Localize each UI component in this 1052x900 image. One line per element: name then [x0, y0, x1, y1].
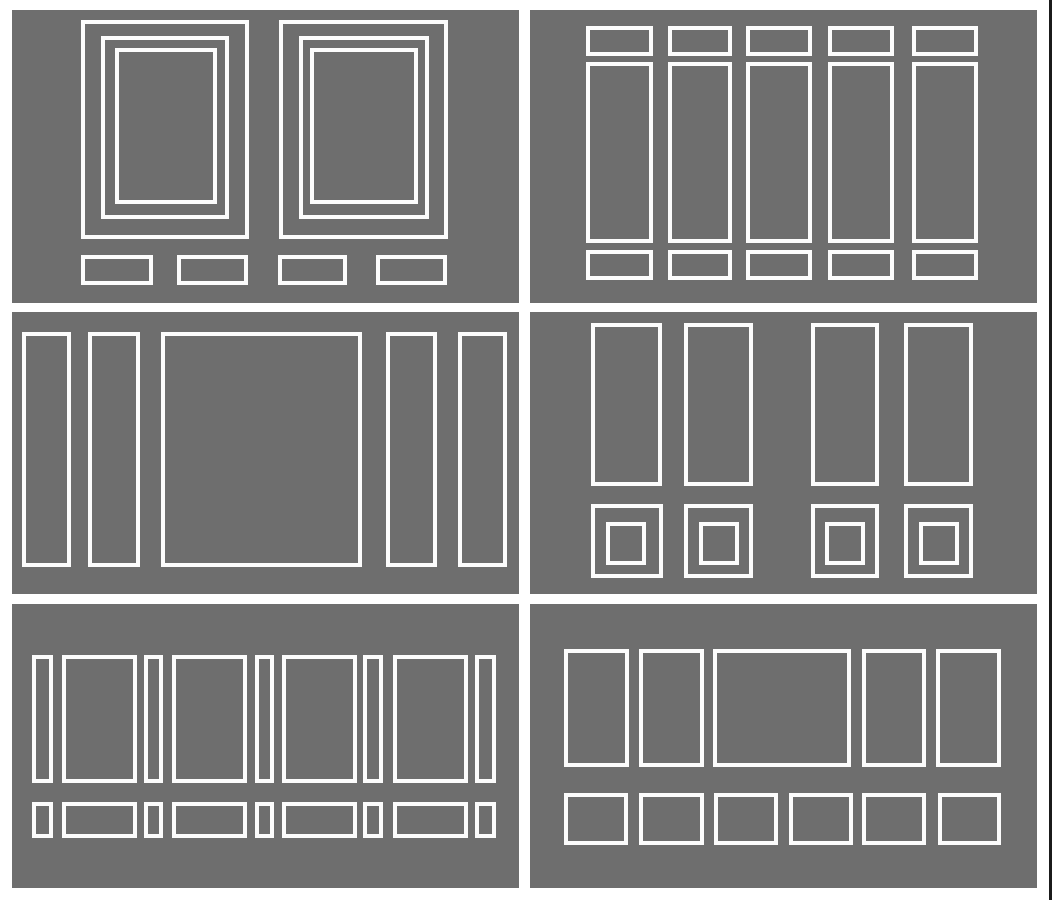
molding-frame-outline: [475, 802, 496, 838]
molding-frame-outline: [828, 250, 894, 280]
molding-frame-outline: [177, 255, 248, 285]
molding-frame-outline: [746, 26, 812, 56]
molding-frame-outline: [458, 332, 507, 567]
molding-frame-outline: [713, 649, 851, 767]
molding-frame-outline: [475, 655, 496, 783]
molding-frame-outline: [393, 802, 468, 838]
molding-frame-outline: [586, 62, 653, 243]
molding-frame-outline: [88, 332, 140, 567]
panel-nested-picture-frames-with-base-blocks: [12, 10, 519, 303]
molding-frame-outline: [936, 649, 1001, 767]
molding-layout-diagram: [0, 0, 1052, 900]
molding-frame-outline: [606, 522, 646, 565]
molding-frame-outline: [828, 26, 894, 56]
molding-frame-outline: [912, 62, 978, 243]
panel-center-square-with-side-columns: [12, 312, 519, 594]
molding-frame-outline: [22, 332, 71, 567]
molding-frame-outline: [668, 250, 732, 280]
molding-frame-outline: [811, 323, 879, 486]
molding-frame-outline: [144, 802, 163, 838]
molding-frame-outline: [746, 62, 812, 243]
molding-frame-outline: [363, 802, 383, 838]
molding-frame-outline: [789, 793, 853, 845]
molding-frame-outline: [714, 793, 778, 845]
molding-frame-outline: [282, 802, 357, 838]
molding-frame-outline: [912, 250, 978, 280]
molding-frame-outline: [393, 655, 468, 783]
molding-frame-outline: [376, 255, 447, 285]
molding-frame-outline: [32, 802, 53, 838]
molding-frame-outline: [699, 522, 739, 565]
panel-mixed-width-upper-row-with-base-row: [530, 604, 1037, 888]
molding-frame-outline: [363, 655, 383, 783]
molding-frame-outline: [668, 62, 732, 243]
molding-frame-outline: [668, 26, 732, 56]
molding-frame-outline: [255, 655, 274, 783]
molding-frame-outline: [310, 48, 418, 204]
molding-frame-outline: [912, 26, 978, 56]
molding-frame-outline: [746, 250, 812, 280]
panel-alternating-narrow-wide-two-tier: [12, 604, 519, 888]
molding-frame-outline: [564, 793, 628, 845]
panel-five-columns-header-body-footer: [530, 10, 1037, 303]
molding-frame-outline: [586, 26, 653, 56]
molding-frame-outline: [172, 655, 247, 783]
molding-frame-outline: [62, 655, 137, 783]
molding-frame-outline: [639, 793, 704, 845]
molding-frame-outline: [825, 522, 865, 565]
molding-frame-outline: [591, 323, 662, 486]
molding-frame-outline: [255, 802, 274, 838]
molding-frame-outline: [115, 48, 217, 204]
molding-frame-outline: [639, 649, 704, 767]
molding-frame-outline: [828, 62, 894, 243]
molding-frame-outline: [862, 649, 926, 767]
molding-frame-outline: [386, 332, 437, 567]
molding-frame-outline: [172, 802, 247, 838]
molding-frame-outline: [919, 522, 959, 565]
molding-frame-outline: [62, 802, 137, 838]
molding-frame-outline: [904, 323, 973, 486]
molding-frame-outline: [81, 255, 153, 285]
molding-frame-outline: [684, 323, 753, 486]
molding-frame-outline: [862, 793, 926, 845]
panel-tall-panels-over-nested-squares: [530, 312, 1037, 594]
molding-frame-outline: [144, 655, 163, 783]
molding-frame-outline: [32, 655, 53, 783]
molding-frame-outline: [586, 250, 653, 280]
molding-frame-outline: [278, 255, 347, 285]
molding-frame-outline: [161, 332, 362, 567]
molding-frame-outline: [282, 655, 357, 783]
molding-frame-outline: [564, 649, 629, 767]
molding-frame-outline: [938, 793, 1001, 845]
